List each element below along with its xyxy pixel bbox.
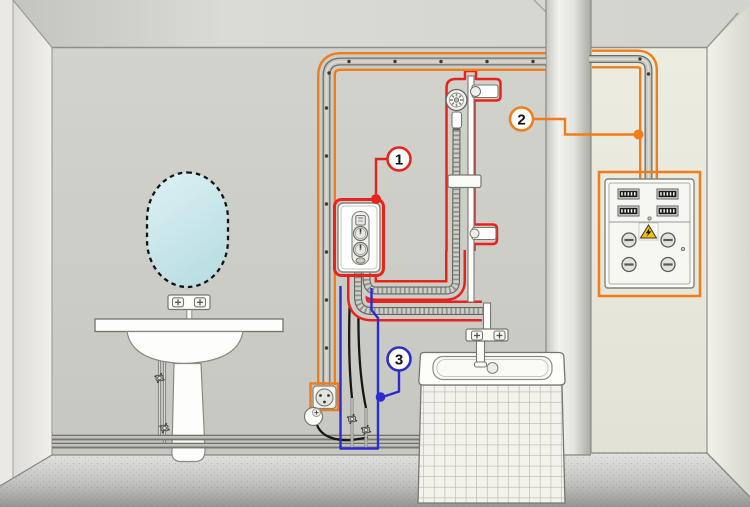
- shower-rail-joint: [470, 229, 479, 238]
- panel-breaker-knob: [622, 233, 636, 247]
- callout-2-number: 2: [517, 111, 525, 128]
- callout-1-anchor-dot: [371, 194, 381, 204]
- heater-display: [356, 216, 366, 226]
- power-socket: [313, 386, 336, 409]
- tub-faucet-riser: [484, 303, 491, 330]
- tub-faucet-handle-right: [494, 331, 505, 340]
- right-wall: [707, 5, 750, 497]
- bathtub-drain: [487, 363, 498, 374]
- panel-breaker-knob: [661, 233, 675, 247]
- electrical-panel: [599, 172, 700, 296]
- heater-outlet: [356, 258, 365, 264]
- sink-countertop: [95, 319, 283, 332]
- tub-faucet-handle-left: [472, 331, 483, 340]
- tub-faucet-spout: [477, 341, 485, 365]
- panel-meter-display: [618, 189, 639, 199]
- diagram-stage: 1 2 3: [0, 0, 750, 507]
- ceiling: [0, 0, 750, 48]
- water-heater: [335, 200, 384, 276]
- callout-3-anchor-dot: [376, 392, 386, 402]
- panel-meter-display: [657, 189, 678, 199]
- warning-triangle-icon: [639, 223, 658, 240]
- callout-2-anchor-dot: [634, 130, 644, 140]
- bathtub-tiled-panel: [418, 385, 565, 503]
- shower-rail-joint: [471, 87, 481, 97]
- heater-dial-top: [354, 227, 368, 241]
- shower-head: [446, 90, 467, 111]
- panel-breaker-knob: [661, 258, 675, 272]
- diagram-canvas: 1 2 3: [0, 0, 750, 507]
- left-wall-edge: [0, 0, 13, 484]
- mirror: [147, 173, 228, 288]
- panel-meter-display: [657, 206, 678, 216]
- shower-holder-bracket: [448, 175, 481, 188]
- bathtub: [418, 353, 565, 504]
- shower-rail: [468, 76, 474, 302]
- callout-3-number: 3: [395, 351, 403, 368]
- panel-meter-display: [618, 206, 639, 216]
- sink-faucet-handle-right: [195, 298, 206, 307]
- sink-faucet-handle-left: [173, 298, 184, 307]
- shower-handle: [452, 112, 462, 128]
- heater-dial-bottom: [354, 243, 368, 257]
- callout-1-number: 1: [395, 151, 403, 168]
- panel-breaker-knob: [622, 258, 636, 272]
